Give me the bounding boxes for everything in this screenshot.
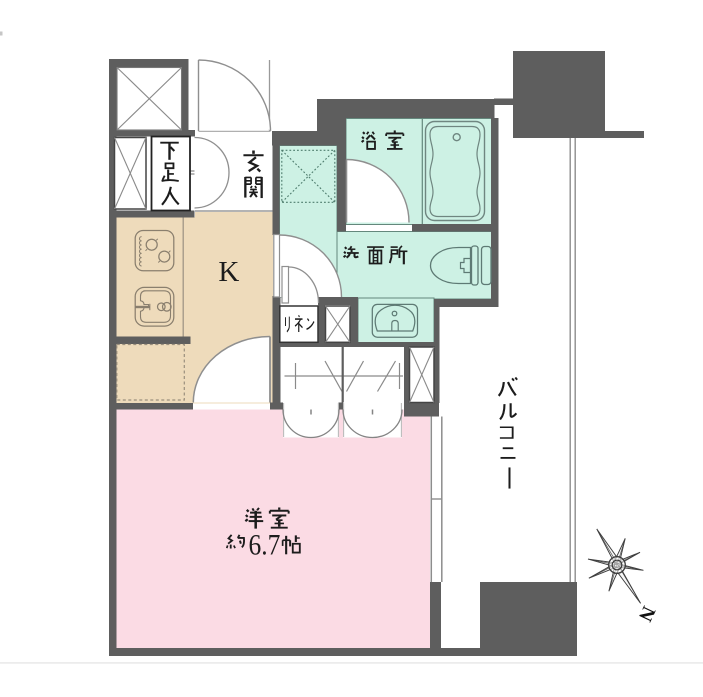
svg-text:K: K [218, 256, 239, 288]
svg-text:6.7: 6.7 [249, 529, 281, 562]
